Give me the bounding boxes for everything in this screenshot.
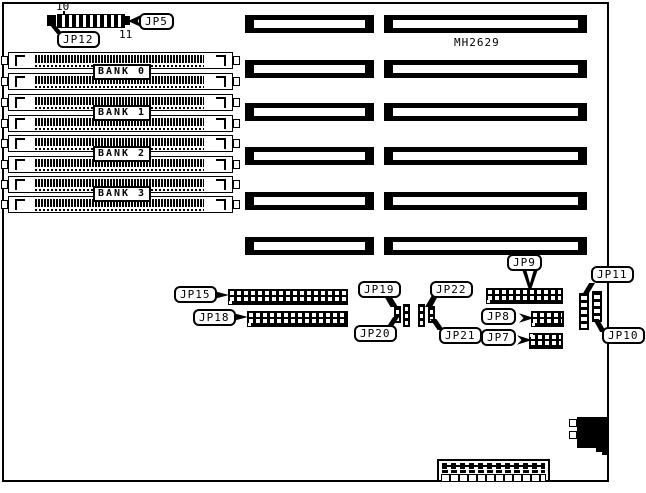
jp21-jp22-strip-a — [418, 304, 425, 327]
expansion-slot-1-long — [384, 15, 587, 33]
jp9-header — [486, 288, 563, 304]
jp22-label: JP22 — [430, 281, 473, 298]
power-pin-row-middle — [442, 470, 545, 473]
expansion-slot-6-short — [245, 237, 374, 255]
simm-tab-right — [233, 77, 240, 86]
jp15-header — [228, 289, 348, 305]
board-model: MH2629 — [454, 37, 500, 48]
power-pin-row-top — [442, 463, 545, 469]
jp18-header — [247, 311, 348, 327]
slot-opening — [254, 242, 365, 250]
keyboard-connector — [577, 417, 609, 448]
pin-column — [420, 306, 423, 325]
expansion-slot-2-long — [384, 60, 587, 78]
simm-dotted-line — [35, 128, 204, 130]
simm-latch-right — [216, 159, 226, 170]
pin-column — [405, 306, 408, 325]
jp5-label: JP5 — [139, 13, 174, 30]
pin-column — [594, 293, 600, 320]
connector-tab-lower — [569, 431, 577, 439]
jp15-label: JP15 — [174, 286, 217, 303]
slot-opening — [393, 197, 578, 205]
simm-tab-left — [1, 98, 8, 107]
pin-row — [533, 313, 562, 317]
jp5-header — [57, 14, 125, 28]
expansion-slot-4-short — [245, 147, 374, 165]
jp12-label: JP12 — [57, 31, 100, 48]
jp10-label: JP10 — [602, 327, 645, 344]
jp5-header-endcap — [123, 16, 130, 25]
slot-opening — [254, 152, 365, 160]
pin1-marker — [487, 300, 490, 303]
jp19-jp20-strip-b — [403, 304, 410, 327]
simm-latch-right — [216, 97, 226, 108]
jp19-label: JP19 — [358, 281, 401, 298]
simm-latch-left — [15, 55, 25, 66]
simm-latch-left — [15, 179, 25, 190]
simm-tab-left — [1, 200, 8, 209]
simm-tab-left — [1, 56, 8, 65]
simm-tab-right — [233, 160, 240, 169]
simm-dotted-line — [35, 86, 204, 88]
simm-tab-right — [233, 98, 240, 107]
power-connector — [437, 459, 550, 482]
keyboard-connector-step2 — [602, 452, 609, 455]
pin1-marker — [532, 323, 535, 326]
simm-latch-left — [15, 118, 25, 129]
slot-opening — [254, 197, 365, 205]
slot-opening — [393, 242, 578, 250]
simm-tab-right — [233, 56, 240, 65]
slot-opening — [254, 108, 365, 116]
simm-tab-left — [1, 119, 8, 128]
simm-latch-right — [216, 118, 226, 129]
simm-contacts — [35, 97, 204, 105]
expansion-slot-3-short — [245, 103, 374, 121]
simm-dotted-line — [35, 169, 204, 171]
bank3-label: BANK 3 — [93, 186, 151, 202]
simm-latch-left — [15, 199, 25, 210]
pin1-marker — [248, 323, 251, 326]
expansion-slot-3-long — [384, 103, 587, 121]
pin-row — [488, 290, 561, 294]
bank2-label: BANK 2 — [93, 146, 151, 162]
pin-row — [249, 313, 346, 317]
pin-number-11: 11 — [119, 29, 132, 40]
simm-tab-right — [233, 139, 240, 148]
jp7-label: JP7 — [481, 329, 516, 346]
jp18-label: JP18 — [193, 309, 236, 326]
jp10-jp11-strip-a — [579, 293, 589, 330]
jp9-label: JP9 — [507, 254, 542, 271]
pin-row — [230, 291, 346, 295]
simm-tab-left — [1, 139, 8, 148]
simm-tab-right — [233, 119, 240, 128]
simm-latch-right — [216, 199, 226, 210]
jp8-header — [531, 311, 564, 327]
pin-row — [531, 341, 561, 345]
jp11-label: JP11 — [591, 266, 634, 283]
pin1-marker — [530, 334, 533, 337]
expansion-slot-5-short — [245, 192, 374, 210]
jp10-jp11-strip-b — [592, 291, 602, 322]
expansion-slot-2-short — [245, 60, 374, 78]
simm-latch-left — [15, 76, 25, 87]
simm-latch-right — [216, 179, 226, 190]
bank1-label: BANK 1 — [93, 105, 151, 121]
simm-tab-right — [233, 200, 240, 209]
simm-latch-left — [15, 138, 25, 149]
expansion-slot-6-long — [384, 237, 587, 255]
connector-tab-upper — [569, 419, 577, 427]
pin-row — [531, 335, 561, 339]
pin1-marker — [229, 301, 232, 304]
slot-opening — [254, 65, 365, 73]
simm-contacts — [35, 55, 204, 63]
slot-opening — [393, 108, 578, 116]
expansion-slot-4-long — [384, 147, 587, 165]
pin-row — [533, 319, 562, 323]
jp7-header — [529, 333, 563, 349]
motherboard-jumper-diagram: 10 11 JP5 JP12 BANK 0 BANK 1 BANK 2 BANK… — [0, 0, 646, 493]
pin-column — [581, 295, 587, 328]
slot-opening — [393, 65, 578, 73]
pin-row — [230, 297, 346, 301]
power-pin-row-bottom — [441, 474, 546, 482]
simm-tab-left — [1, 77, 8, 86]
expansion-slot-1-short — [245, 15, 374, 33]
simm-latch-left — [15, 159, 25, 170]
slot-opening — [254, 20, 365, 28]
bank0-label: BANK 0 — [93, 64, 151, 80]
simm-latch-left — [15, 97, 25, 108]
simm-latch-right — [216, 76, 226, 87]
jp8-label: JP8 — [481, 308, 516, 325]
slot-opening — [393, 152, 578, 160]
simm-latch-right — [216, 55, 226, 66]
jp21-label: JP21 — [439, 327, 482, 344]
simm-tab-right — [233, 180, 240, 189]
simm-dotted-line — [35, 209, 204, 211]
expansion-slot-5-long — [384, 192, 587, 210]
slot-opening — [393, 20, 578, 28]
pin-row — [249, 319, 346, 323]
simm-tab-left — [1, 160, 8, 169]
simm-tab-left — [1, 180, 8, 189]
pin-row — [488, 296, 561, 300]
jp20-label: JP20 — [354, 325, 397, 342]
simm-contacts — [35, 138, 204, 146]
jp12-pin-block — [47, 15, 56, 26]
simm-latch-right — [216, 138, 226, 149]
